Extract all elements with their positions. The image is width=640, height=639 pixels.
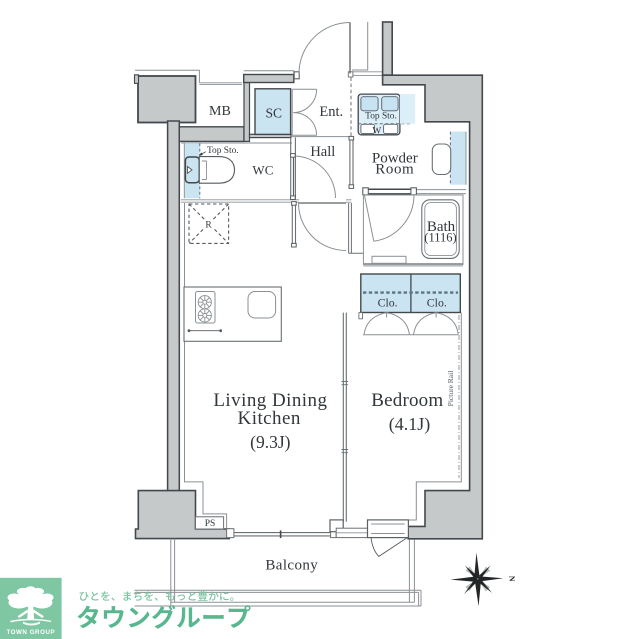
svg-text:W: W xyxy=(372,126,381,136)
svg-text:Clo.: Clo. xyxy=(427,296,447,310)
svg-text:Top Sto.: Top Sto. xyxy=(207,146,239,156)
svg-text:Balcony: Balcony xyxy=(265,557,318,573)
svg-text:Top Sto.: Top Sto. xyxy=(365,111,397,121)
svg-text:(1116): (1116) xyxy=(424,231,456,245)
svg-text:Ent.: Ent. xyxy=(319,104,343,120)
svg-text:WC: WC xyxy=(252,162,273,177)
svg-text:Kitchen: Kitchen xyxy=(238,408,301,429)
svg-text:N: N xyxy=(507,576,516,582)
svg-text:SC: SC xyxy=(266,106,283,121)
svg-text:Hall: Hall xyxy=(310,144,335,160)
svg-text:Bedroom: Bedroom xyxy=(371,390,443,411)
svg-text:TOWN GROUP: TOWN GROUP xyxy=(6,629,55,636)
svg-text:(4.1J): (4.1J) xyxy=(389,414,431,435)
svg-text:MB: MB xyxy=(209,104,231,119)
svg-text:Room: Room xyxy=(375,162,414,178)
svg-text:Clo.: Clo. xyxy=(378,296,398,310)
svg-text:Picture Rail: Picture Rail xyxy=(446,371,455,407)
svg-text:R: R xyxy=(205,221,212,231)
svg-text:(9.3J): (9.3J) xyxy=(250,432,291,452)
svg-text:PS: PS xyxy=(205,519,216,529)
